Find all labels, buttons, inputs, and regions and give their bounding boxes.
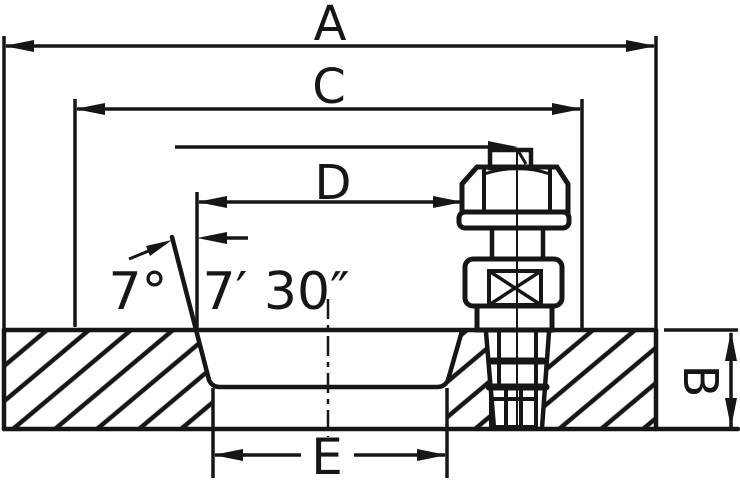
dim-d-arrow-right [433,196,463,208]
dim-d-arrow-left [197,196,227,208]
dim-a-arrow-left [4,40,34,52]
angle-degrees-label: 7° [108,262,167,322]
angle-leader-line [129,250,151,259]
dimension-b: B [664,330,738,428]
dim-a-label: A [314,0,347,52]
dim-d-label: D [315,155,352,211]
cam-block-lower [477,306,552,330]
hatching-left-section [5,331,212,428]
washer [459,212,569,228]
bottom-nut-slots [506,390,521,428]
dim-e-arrow-right [417,449,447,461]
taper-angle-callout: 7° 7′ 30″ [108,232,349,322]
dim-c-arrow-right [552,103,582,115]
angle-ref-arrow [197,232,227,244]
dim-b-arrow-top [725,331,737,361]
dimension-e: E [213,388,447,480]
dim-e-arrow-left [213,449,243,461]
technical-drawing-canvas: A C D 7° 7′ 30″ E [0,0,740,480]
hatching-right-section [448,331,655,428]
dim-c-label: C [312,59,346,115]
dim-c-arrow-left [75,103,105,115]
dim-b-arrow-bottom [725,398,737,428]
cam-block-cross [489,271,541,305]
dim-e-label: E [311,428,343,480]
angle-leader-arrow [146,240,172,256]
angle-minutes-seconds-label: 7′ 30″ [202,262,349,322]
flange-section-drawing: A C D 7° 7′ 30″ E [0,0,740,480]
dim-a-arrow-right [626,40,656,52]
hex-nut [462,167,568,212]
cam-block-outer [465,259,562,306]
bottom-nut-outline [491,388,536,428]
dim-b-label: B [672,365,728,398]
